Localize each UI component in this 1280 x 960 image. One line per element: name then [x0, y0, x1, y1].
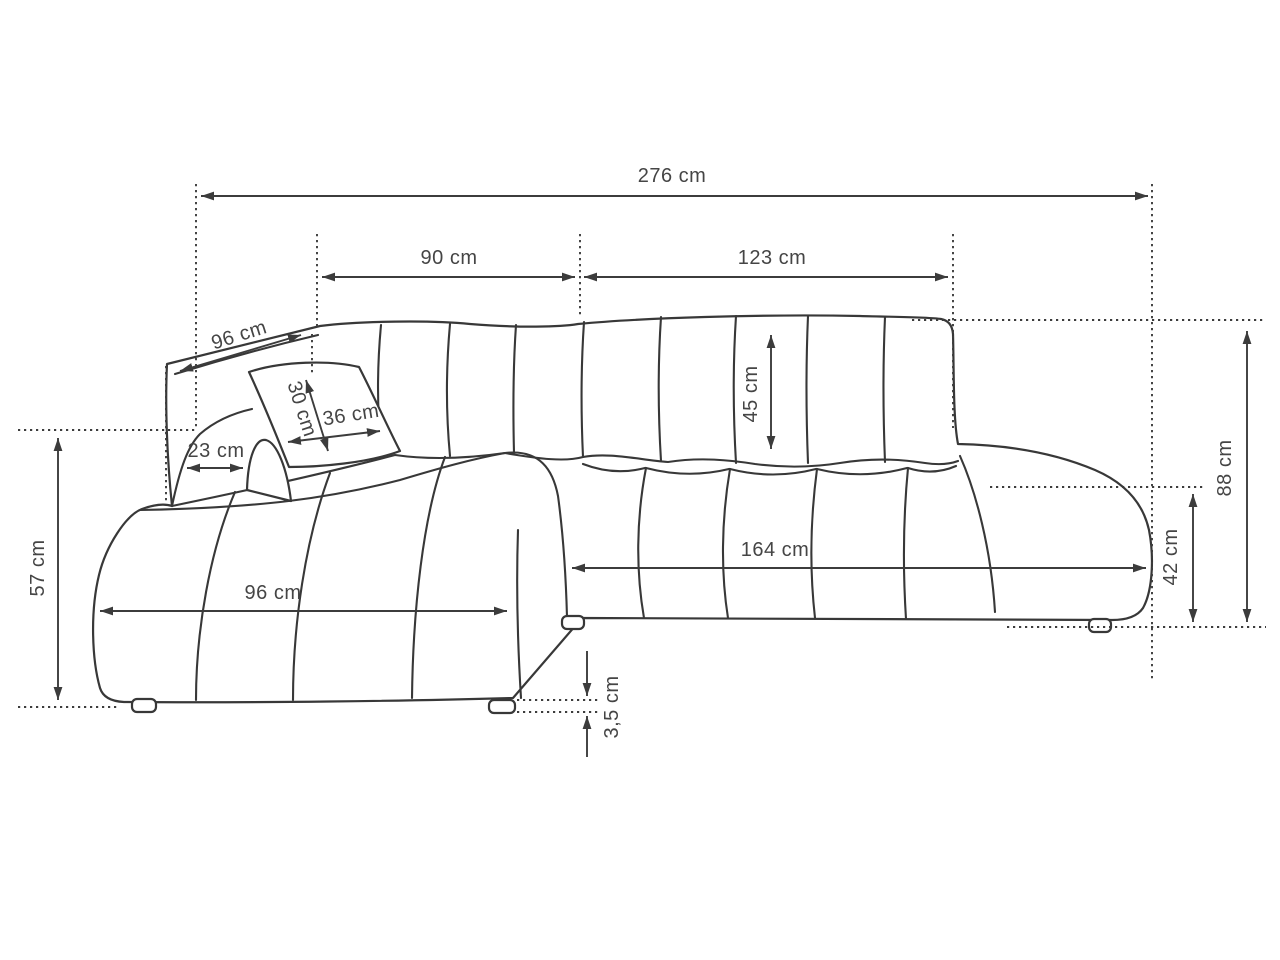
dim-overall-width-label: 276 cm [638, 165, 707, 187]
dim-back-right-section: 123 cm [584, 247, 948, 277]
dim-leg-height-label: 3,5 cm [601, 675, 623, 738]
leg-chaise-left [132, 699, 156, 712]
dim-armrest-height-label: 42 cm [1160, 529, 1182, 586]
dim-overall-height: 88 cm [1214, 331, 1247, 622]
dim-back-left-label: 90 cm [421, 247, 478, 269]
dim-overall-height-label: 88 cm [1214, 440, 1236, 497]
dim-overall-width: 276 cm [201, 165, 1148, 196]
sofa-dimension-diagram: 276 cm 90 cm 123 cm 96 cm 30 cm 36 cm 23… [0, 0, 1280, 960]
leg-seat-right [1089, 619, 1111, 632]
leg-chaise-right [489, 700, 515, 713]
dim-back-rail-width-label: 23 cm [188, 440, 245, 462]
diagram-canvas: 276 cm 90 cm 123 cm 96 cm 30 cm 36 cm 23… [0, 0, 1280, 960]
dim-chaise-length-label: 96 cm [245, 582, 302, 604]
sofa-drawing [93, 315, 1152, 713]
dim-leg-height: 3,5 cm [587, 651, 623, 757]
dim-backrest-cushion-height-label: 45 cm [740, 366, 762, 423]
leg-seat-left [562, 616, 584, 629]
dim-chaise-side-height: 57 cm [27, 438, 58, 700]
dim-armrest-height: 42 cm [1160, 494, 1193, 622]
dim-chaise-side-height-label: 57 cm [27, 540, 49, 597]
dim-seat-front-width-label: 164 cm [741, 539, 810, 561]
dim-back-right-label: 123 cm [738, 247, 807, 269]
dim-back-left-section: 90 cm [322, 247, 575, 277]
